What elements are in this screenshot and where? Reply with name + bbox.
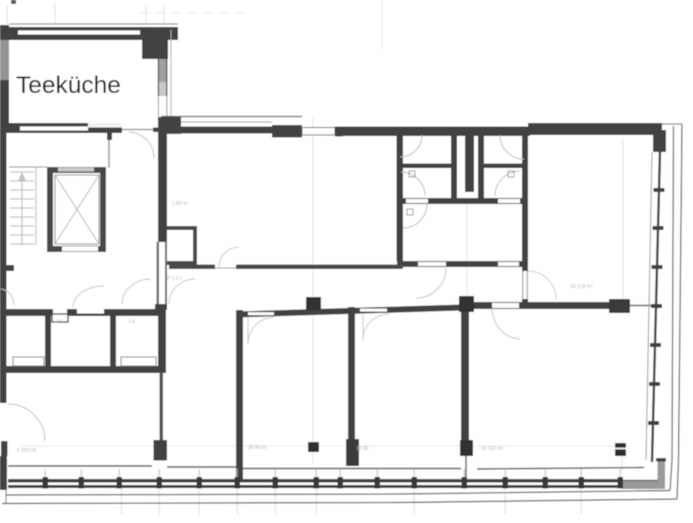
svg-text:4.5: 4.5 <box>55 319 62 325</box>
svg-text:5 250 06: 5 250 06 <box>17 448 37 454</box>
svg-text:32 80: 32 80 <box>356 446 369 452</box>
svg-text:1 80 m: 1 80 m <box>172 201 187 207</box>
svg-text:38 50 m: 38 50 m <box>248 445 266 451</box>
svg-text:Teeküche: Teeküche <box>16 72 121 99</box>
svg-text:30 218 m²: 30 218 m² <box>570 284 593 290</box>
svg-text:P 1.5 x: P 1.5 x <box>167 276 183 282</box>
svg-text:30 187 m²: 30 187 m² <box>481 446 504 452</box>
svg-text:3.8: 3.8 <box>128 319 135 325</box>
